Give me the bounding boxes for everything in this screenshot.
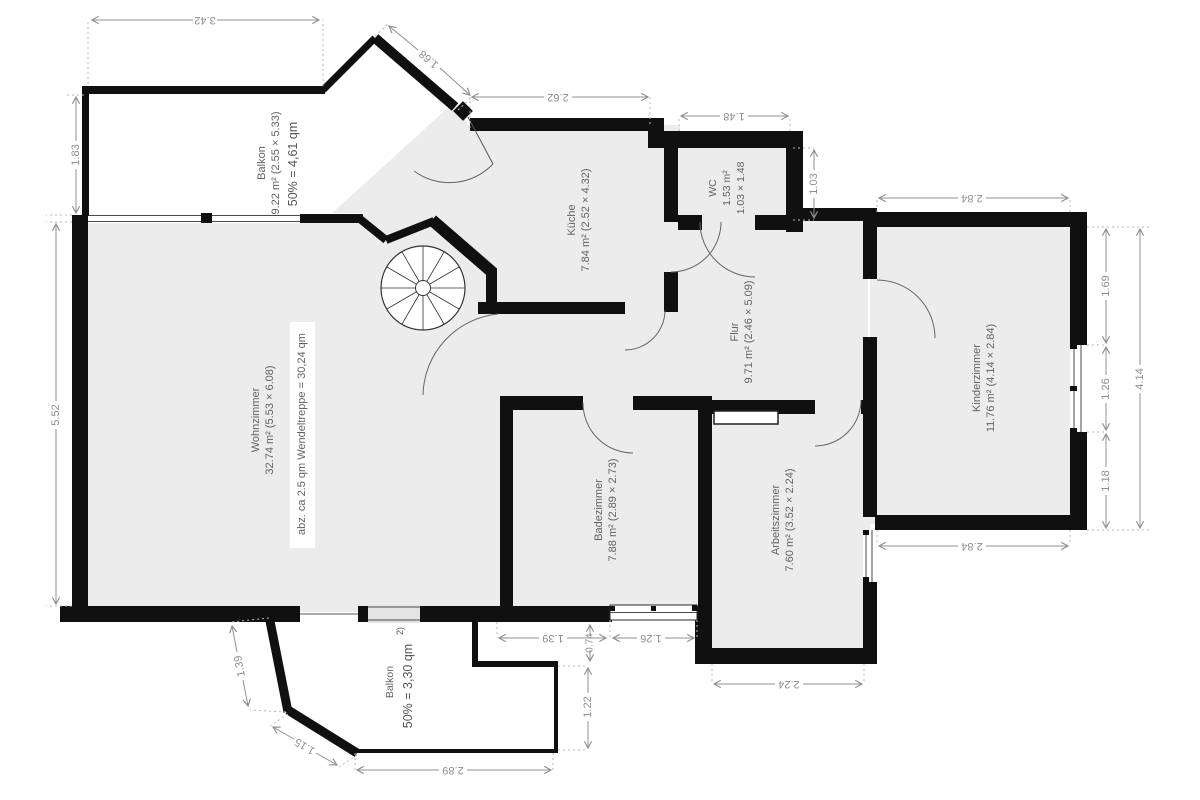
room-child-name: Kinderzimmer <box>971 344 983 412</box>
kitchen-right-wall-a <box>664 148 678 222</box>
dim-balcony2-step-height: 1.22 <box>582 696 594 717</box>
room-living-note: abz. ca 2.5 qm Wendeltreppe = 30,24 qm <box>296 333 308 535</box>
dim-wc-width: 1.48 <box>723 110 744 122</box>
entry-diagonal-wall <box>375 38 455 107</box>
office-right-window <box>863 530 876 582</box>
child-right-wall-a <box>1070 212 1087 345</box>
child-top-wall <box>863 212 1087 227</box>
room-balcony2-share: 50% = 3,30 qm <box>401 644 415 728</box>
dim-child-top-width: 2.84 <box>961 192 982 204</box>
office-top-wall-b <box>861 400 877 414</box>
balcony-left-wall <box>82 86 89 216</box>
roof-diagonal-left <box>323 38 375 90</box>
floor-plan: 3.42 1.68 2.62 1.48 1.03 1.83 5.52 2.84 … <box>0 0 1200 800</box>
room-balcony-share: 50% = 4,61 qm <box>286 122 300 206</box>
room-wc-name: WC <box>707 179 719 197</box>
bath-left-wall <box>500 396 513 622</box>
dim-kitchen-width: 2.62 <box>547 91 568 103</box>
office-niche <box>714 411 778 424</box>
dim-child-right-total: 4.14 <box>1134 368 1146 389</box>
dim-bath-bottom-step: 0.74 <box>585 633 596 653</box>
living-bottom-wall-b <box>420 606 612 622</box>
dim-balcony2-bottom-width: 2.89 <box>442 764 463 776</box>
balcony-top-wall <box>82 86 325 94</box>
room-balcony-name: Balkon <box>256 146 268 180</box>
dim-balcony2-diagonal: 1.15 <box>293 735 318 756</box>
wc-bottom-wall-b <box>755 215 786 230</box>
dim-bath-bottom-right: 1.26 <box>640 632 661 644</box>
dim-balcony-left-height: 1.83 <box>70 144 82 165</box>
wc-top-wall <box>664 131 803 148</box>
room-bath-name: Badezimmer <box>593 479 605 541</box>
bathroom-floor <box>505 400 705 615</box>
living-bottom-wall-a <box>60 606 300 622</box>
child-left-wall-b <box>863 337 877 517</box>
dim-entry-wall: 1.68 <box>417 47 441 70</box>
kitchen-right-wall-b <box>664 272 678 312</box>
floor-plan-page: 3.42 1.68 2.62 1.48 1.03 1.83 5.52 2.84 … <box>0 0 1200 800</box>
dim-office-bottom-width: 2.24 <box>778 678 799 690</box>
dim-child-bottom-width: 2.84 <box>961 540 982 552</box>
room-hall-name: Flur <box>729 322 741 341</box>
kitchen-bottom-wall <box>478 302 625 314</box>
dim-balcony-top-width: 3.42 <box>194 14 215 26</box>
room-kitchen-area: 7.84 m² (2.52 × 4.32) <box>580 168 592 271</box>
dim-bath-bottom-left: 1.39 <box>542 632 563 644</box>
room-living-area: 32.74 m² (5.53 × 6.08) <box>264 365 276 474</box>
dim-living-left-height: 5.52 <box>50 404 62 425</box>
living-left-wall <box>72 215 88 622</box>
dim-child-right-window: 1.26 <box>1100 378 1112 399</box>
room-office-area: 7.60 m² (3.52 × 2.24) <box>784 468 796 571</box>
room-bath-area: 7.88 m² (2.89 × 2.73) <box>607 458 619 561</box>
room-wc-size: 1.03 × 1.48 <box>735 161 747 214</box>
room-child-area: 11.76 m² (4.14 × 2.84) <box>985 324 997 432</box>
room-wc-area: 1.53 m² <box>721 170 733 206</box>
room-balcony2-name: Balkon <box>384 666 396 698</box>
room-living-name: Wohnzimmer <box>250 387 262 452</box>
child-left-wall-a <box>863 227 877 279</box>
spiral-staircase <box>381 246 465 330</box>
kitchen-top-wall <box>470 118 652 131</box>
bottom-post <box>358 606 368 622</box>
office-right-wall <box>863 582 877 658</box>
dim-child-right-lower: 1.18 <box>1100 470 1112 491</box>
dim-balcony2-left: 1.39 <box>232 654 248 677</box>
office-bottom-wall <box>695 648 877 664</box>
room-kitchen-name: Küche <box>566 204 578 235</box>
wc-bottom-wall-a <box>678 215 702 230</box>
window-mullion <box>201 213 212 223</box>
child-bottom-wall <box>875 515 1087 530</box>
room-balcony-area: 9.22 m² (2.55 × 5.33) <box>270 111 282 214</box>
room-hall-area: 9.71 m² (2.46 × 5.09) <box>743 280 755 383</box>
hallway-floor <box>495 220 868 410</box>
room-balcony2-footnote: 2) <box>395 627 405 635</box>
living-top-wall-right <box>300 214 363 223</box>
dim-child-right-upper: 1.69 <box>1100 275 1112 296</box>
balcony2-left-wall <box>269 616 288 712</box>
dim-wc-height: 1.03 <box>808 173 820 194</box>
room-office-name: Arbeitszimmer <box>770 485 782 556</box>
